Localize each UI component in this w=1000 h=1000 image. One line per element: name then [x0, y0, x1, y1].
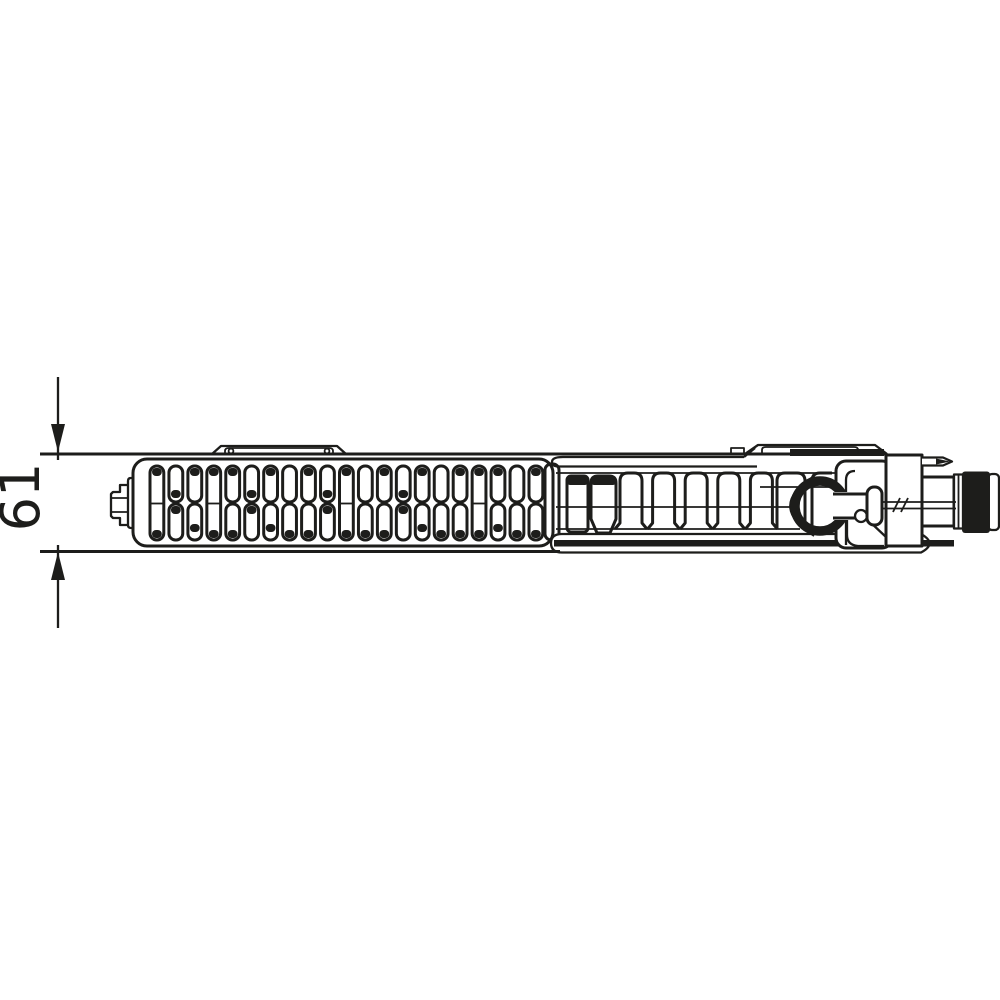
slot-cap: [190, 524, 200, 532]
slot-cap: [152, 468, 162, 476]
slot-cap: [323, 506, 333, 514]
convector-fin: [745, 473, 777, 529]
slot-cap: [455, 468, 465, 476]
slot-cap: [171, 490, 181, 498]
clip-top-bar: [591, 476, 616, 485]
radiator-top-edge: [40, 445, 887, 456]
dimension-label: 61: [0, 463, 52, 532]
plug-body: [111, 485, 128, 525]
bracket-tab: [731, 448, 744, 454]
slot-cap: [360, 530, 370, 538]
slot-cap: [247, 490, 257, 498]
slot-cap: [379, 468, 389, 476]
bracket-hook-left: [229, 449, 234, 454]
slot-cap: [209, 468, 219, 476]
grille-panel: [133, 459, 553, 546]
bracket-hook-right: [325, 449, 330, 454]
hanger-clip-a: [567, 476, 588, 532]
hanger-clip-b: [591, 476, 616, 533]
dimension-arrow-top-icon: [51, 424, 65, 452]
slot-cap: [209, 530, 219, 538]
slot-cap: [379, 530, 389, 538]
valve-assembly: [790, 455, 999, 548]
slot-cap: [512, 530, 522, 538]
slot-cap: [417, 468, 427, 476]
slot-cap: [266, 524, 276, 532]
slot-cap: [474, 530, 484, 538]
slot-cap: [417, 524, 427, 532]
slot-cap: [342, 468, 352, 476]
slot-cap: [398, 506, 408, 514]
slot-cap: [228, 530, 238, 538]
convector-fins: [615, 473, 777, 529]
slot-cap: [152, 530, 162, 538]
slot-cap: [531, 530, 541, 538]
canvas: 61: [0, 0, 1000, 1000]
slot-cap: [474, 468, 484, 476]
slot-cap: [323, 490, 333, 498]
valve-ring-opening: [831, 492, 855, 520]
slot-cap: [190, 468, 200, 476]
slot-cap: [342, 530, 352, 538]
slot-cap: [266, 468, 276, 476]
convector-fin: [713, 473, 745, 529]
slot-cap: [436, 530, 446, 538]
thermostat-cap: [962, 472, 990, 534]
slot-cap: [247, 506, 257, 514]
top-rail: [552, 448, 757, 467]
dimension-arrow-bottom-icon: [51, 552, 65, 580]
dimension-annotation: 61: [0, 377, 65, 628]
convector-fin: [615, 473, 647, 529]
slot-cap: [493, 524, 503, 532]
slot-cap: [304, 530, 314, 538]
clip-top-bar: [567, 476, 588, 485]
spindle-disc: [867, 487, 882, 525]
slot-cap: [228, 468, 238, 476]
slot-cap: [493, 468, 503, 476]
slot-cap: [285, 530, 295, 538]
slot-cap: [398, 490, 408, 498]
convector-fin: [680, 473, 712, 529]
slot-cap: [455, 530, 465, 538]
convector-fin: [648, 473, 680, 529]
valve-pin: [855, 510, 867, 522]
slot-cap: [171, 506, 181, 514]
slot-cap: [304, 468, 314, 476]
radiator-technical-drawing: 61: [0, 0, 1000, 1000]
valve-block: [886, 455, 922, 546]
slot-cap: [531, 468, 541, 476]
